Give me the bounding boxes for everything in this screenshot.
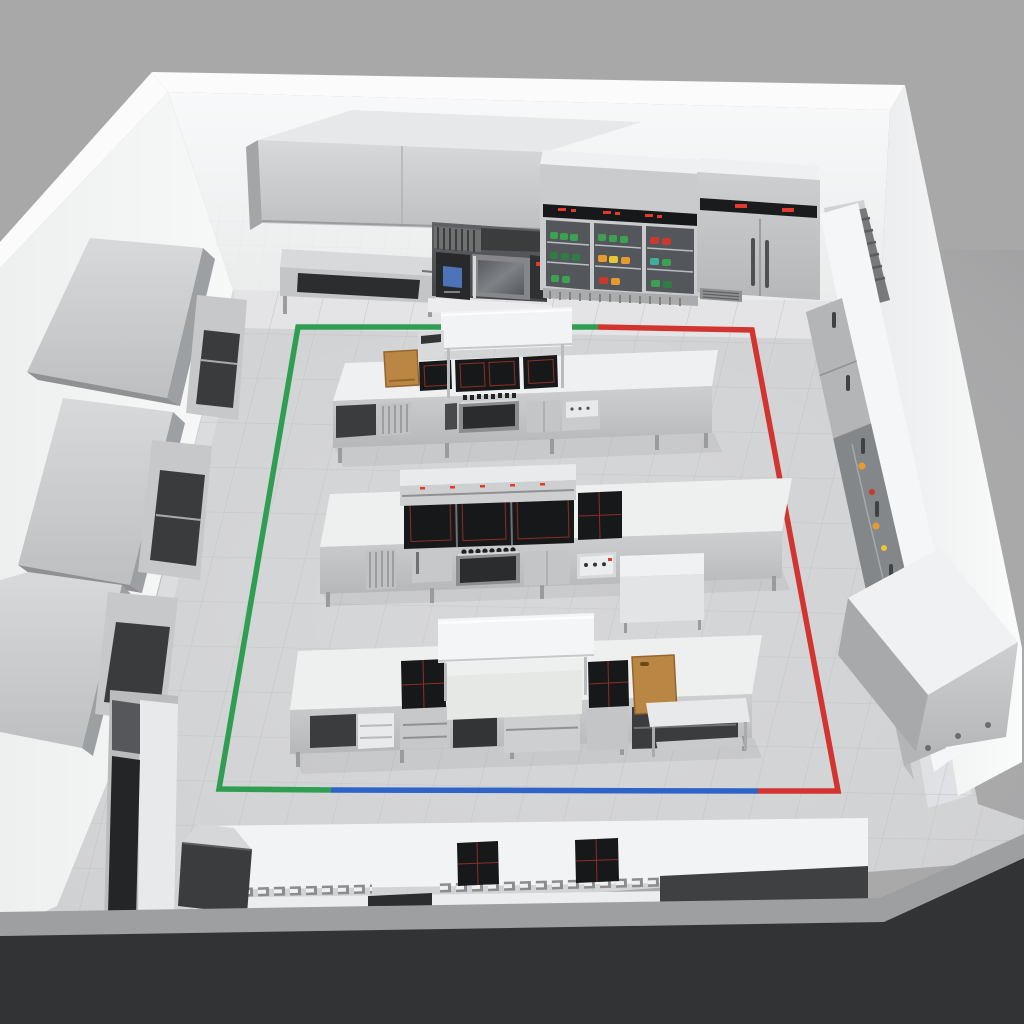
- fridge-handle-right: [765, 240, 769, 288]
- scene-svg: [0, 0, 1024, 1024]
- island1-cutting-board: [384, 350, 419, 387]
- fridge-handle-left: [751, 238, 755, 286]
- fridge-glass-door-3: [646, 226, 694, 294]
- island2-door: [412, 547, 452, 583]
- island2-doors: [524, 550, 570, 586]
- board-handle-slot: [640, 662, 649, 666]
- counter-induction-hob-2: [575, 838, 619, 883]
- island1-doors: [527, 398, 600, 433]
- fridge-glass-door-1: [546, 220, 590, 290]
- island3-steel-drawers: [400, 711, 450, 750]
- island3-white-drawers: [358, 713, 394, 749]
- island1-louver-door: [379, 402, 411, 436]
- kitchen-3d-render: [0, 0, 1024, 1024]
- tall-storage-cabinet: [104, 690, 178, 928]
- combi-screen: [443, 266, 462, 288]
- island2-louver-door: [366, 549, 396, 590]
- island3-hob-left: [401, 659, 446, 709]
- island3-hob-right: [588, 660, 629, 708]
- island2-right-cooktop: [578, 491, 622, 540]
- blue-zone-line: [331, 790, 758, 791]
- island1-open-cabinet: [336, 404, 376, 438]
- island3-doors: [587, 707, 628, 751]
- island3-open-cabinet: [310, 714, 356, 748]
- double-door-upright-fridge: [697, 158, 820, 302]
- counter-induction-hob-1: [457, 841, 499, 886]
- glass-door-display-fridge: [540, 150, 700, 306]
- island1-salamander: [418, 330, 444, 360]
- menu-display-board: [178, 824, 252, 914]
- island2-heat-gantry: [400, 464, 576, 506]
- island2-oven: [456, 552, 520, 586]
- island2-control-box: [577, 552, 616, 579]
- island1-oven: [459, 400, 519, 433]
- fridge-glass-door-2: [594, 223, 642, 292]
